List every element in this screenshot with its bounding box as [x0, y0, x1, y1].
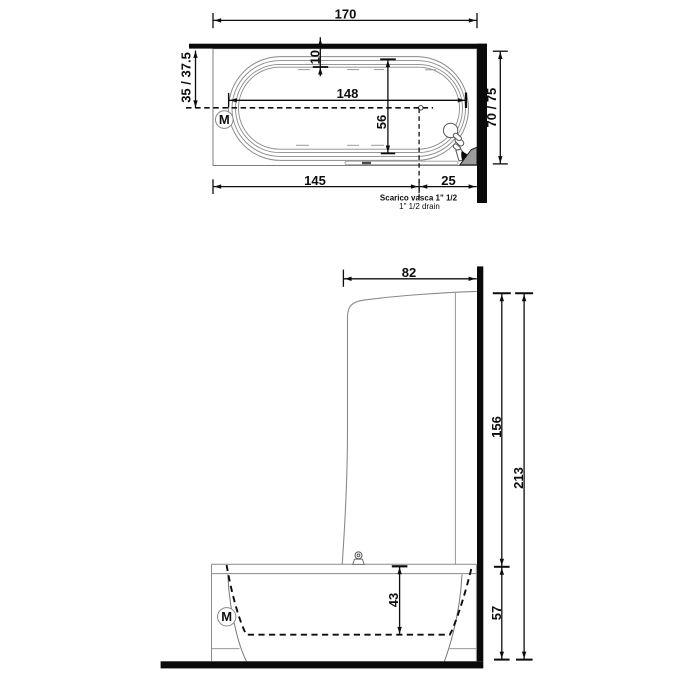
svg-text:148: 148 [337, 86, 359, 101]
svg-text:43: 43 [386, 593, 401, 607]
svg-text:M: M [219, 112, 230, 127]
svg-text:10: 10 [307, 50, 322, 64]
svg-text:156: 156 [489, 416, 504, 438]
svg-text:70 / 75: 70 / 75 [484, 88, 499, 128]
svg-text:56: 56 [374, 115, 389, 129]
svg-text:145: 145 [304, 173, 326, 188]
svg-text:57: 57 [489, 606, 504, 620]
svg-text:82: 82 [402, 265, 416, 280]
svg-text:M: M [221, 609, 232, 624]
svg-text:35 / 37.5: 35 / 37.5 [178, 52, 193, 103]
svg-text:213: 213 [511, 467, 526, 489]
svg-text:170: 170 [335, 7, 357, 22]
svg-text:1" 1/2 drain: 1" 1/2 drain [399, 202, 440, 211]
svg-text:25: 25 [441, 173, 455, 188]
